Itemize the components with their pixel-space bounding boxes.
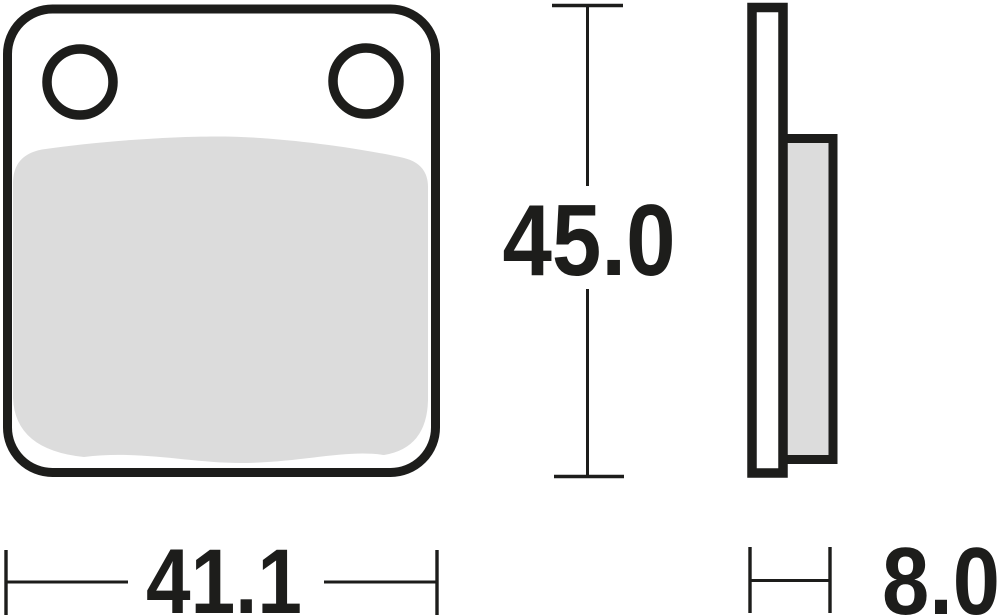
friction-material-side — [783, 139, 833, 460]
height-dimension: 45.0 — [503, 6, 676, 477]
front-view — [8, 9, 436, 473]
technical-drawing-canvas: 45.0 41.1 8.0 — [0, 0, 1000, 616]
width-dimension: 41.1 — [6, 531, 437, 616]
backing-plate-side — [752, 8, 783, 474]
mounting-hole-right — [333, 48, 399, 114]
width-dimension-label: 41.1 — [146, 531, 302, 616]
height-dimension-label: 45.0 — [503, 185, 676, 297]
thickness-dimension-label: 8.0 — [882, 528, 1000, 616]
mounting-hole-left — [47, 49, 113, 115]
friction-material-front — [13, 136, 428, 463]
side-view — [752, 8, 833, 474]
brake-pad-drawing: 45.0 41.1 8.0 — [0, 0, 1000, 616]
thickness-dimension: 8.0 — [750, 528, 1000, 616]
